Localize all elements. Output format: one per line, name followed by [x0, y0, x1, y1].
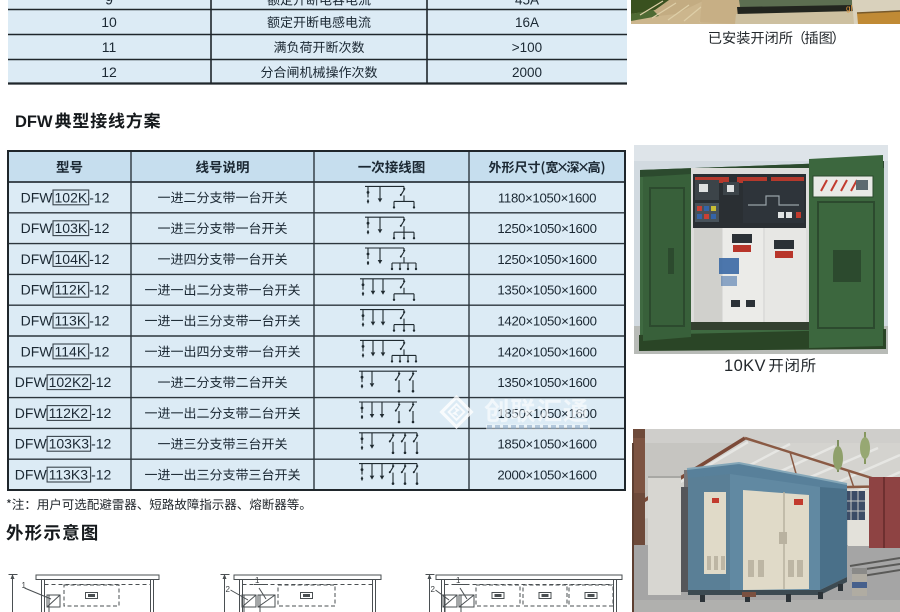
svg-text:45A: 45A — [515, 0, 539, 8]
svg-text:DFW: DFW — [15, 113, 53, 131]
svg-text:2: 2 — [431, 585, 436, 594]
svg-text:-12: -12 — [89, 189, 109, 205]
svg-text:11: 11 — [102, 39, 117, 55]
svg-text:DFW: DFW — [21, 343, 54, 359]
svg-text:DFW: DFW — [21, 251, 54, 267]
svg-text:1: 1 — [456, 576, 461, 585]
svg-text:DFW: DFW — [21, 220, 54, 236]
svg-text:>100: >100 — [512, 40, 542, 55]
svg-text:10KV: 10KV — [724, 357, 766, 375]
svg-text:-12: -12 — [91, 405, 111, 421]
svg-text:DFW: DFW — [21, 282, 54, 298]
svg-text:DFW: DFW — [15, 467, 48, 483]
svg-text:113K: 113K — [55, 313, 87, 329]
svg-text:-12: -12 — [89, 343, 109, 359]
svg-text:gI: gI — [846, 4, 853, 13]
svg-text:1850×1050×1600: 1850×1050×1600 — [497, 437, 596, 452]
svg-text:1350×1050×1600: 1350×1050×1600 — [497, 283, 596, 298]
svg-text:1350×1050×1600: 1350×1050×1600 — [497, 375, 596, 390]
svg-text:113K3: 113K3 — [49, 467, 89, 483]
svg-text:1180×1050×1600: 1180×1050×1600 — [498, 190, 596, 205]
svg-text:2: 2 — [226, 585, 231, 594]
svg-text:103K3: 103K3 — [49, 436, 90, 452]
svg-text:-12: -12 — [91, 467, 111, 483]
svg-text:10: 10 — [101, 14, 117, 30]
svg-text:9: 9 — [105, 0, 113, 8]
svg-text:-12: -12 — [91, 436, 111, 452]
svg-text:103K: 103K — [55, 220, 88, 236]
svg-text:104K: 104K — [55, 251, 88, 267]
svg-text:16A: 16A — [515, 15, 539, 30]
svg-text:2000×1050×1600: 2000×1050×1600 — [497, 468, 596, 483]
svg-text:1: 1 — [255, 576, 260, 585]
svg-text:1420×1050×1600: 1420×1050×1600 — [497, 314, 596, 329]
svg-text:DFW: DFW — [15, 405, 48, 421]
svg-text:-12: -12 — [89, 313, 109, 329]
svg-text:114K: 114K — [55, 343, 87, 359]
svg-text:-12: -12 — [89, 282, 109, 298]
svg-text:-12: -12 — [89, 251, 109, 267]
svg-text:1250×1050×1600: 1250×1050×1600 — [497, 252, 596, 267]
svg-text:12: 12 — [101, 64, 117, 80]
svg-text:102K2: 102K2 — [49, 374, 90, 390]
svg-text:DFW: DFW — [21, 313, 54, 329]
svg-text:2000: 2000 — [512, 65, 542, 80]
svg-text:-12: -12 — [91, 374, 111, 390]
svg-text:DFW: DFW — [15, 374, 48, 390]
svg-text:112K: 112K — [55, 282, 87, 298]
svg-text:DFW: DFW — [21, 189, 54, 205]
svg-text:112K2: 112K2 — [49, 405, 89, 421]
svg-text:1250×1050×1600: 1250×1050×1600 — [497, 221, 596, 236]
svg-text:-12: -12 — [89, 220, 109, 236]
svg-text:102K: 102K — [55, 189, 88, 205]
svg-text:1420×1050×1600: 1420×1050×1600 — [497, 344, 596, 359]
svg-text:DFW: DFW — [15, 436, 48, 452]
svg-text:1: 1 — [22, 581, 27, 590]
